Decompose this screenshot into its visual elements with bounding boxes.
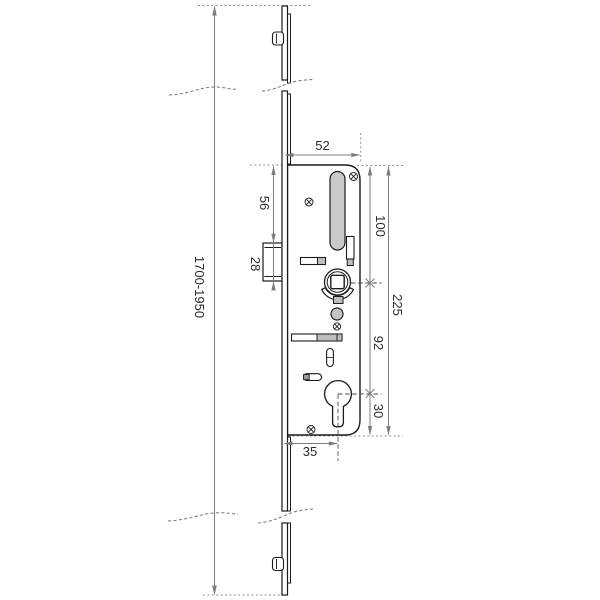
label-case-width-52: 52	[310, 139, 336, 153]
label-rail-length-1700-1950: 1700-1950	[192, 250, 206, 324]
rail-length-dimension	[212, 6, 217, 596]
label-cylinder-to-bottom-30: 30	[371, 398, 385, 424]
bottom-roller-cam	[273, 558, 284, 571]
reinforcement-block	[263, 243, 282, 281]
auxiliary-bolt	[347, 237, 355, 266]
dimension-52	[285, 153, 361, 157]
lever-pin	[304, 374, 322, 381]
label-top-to-spindle-100: 100	[373, 209, 387, 243]
guide-pin-circle	[331, 308, 343, 320]
faceplate-rail	[263, 6, 291, 595]
technical-drawing-canvas: 52 56 28 1700-1950 100 225 92 30 35	[0, 0, 600, 600]
label-top-to-block-56: 56	[257, 190, 271, 216]
top-roller-cam	[273, 32, 284, 45]
deadbolt	[292, 334, 343, 341]
label-spindle-to-cylinder-92: 92	[371, 330, 385, 356]
spindle-hub	[325, 269, 351, 295]
label-case-height-225: 225	[390, 288, 404, 322]
latch-bolt	[301, 258, 326, 265]
dimension-100-92-30	[366, 166, 375, 436]
slot-cutout	[330, 172, 345, 251]
label-backset-35: 35	[297, 445, 323, 459]
label-block-height-28: 28	[248, 251, 262, 277]
lock-drawing-linework	[0, 0, 600, 600]
oval-cutout	[327, 349, 334, 367]
